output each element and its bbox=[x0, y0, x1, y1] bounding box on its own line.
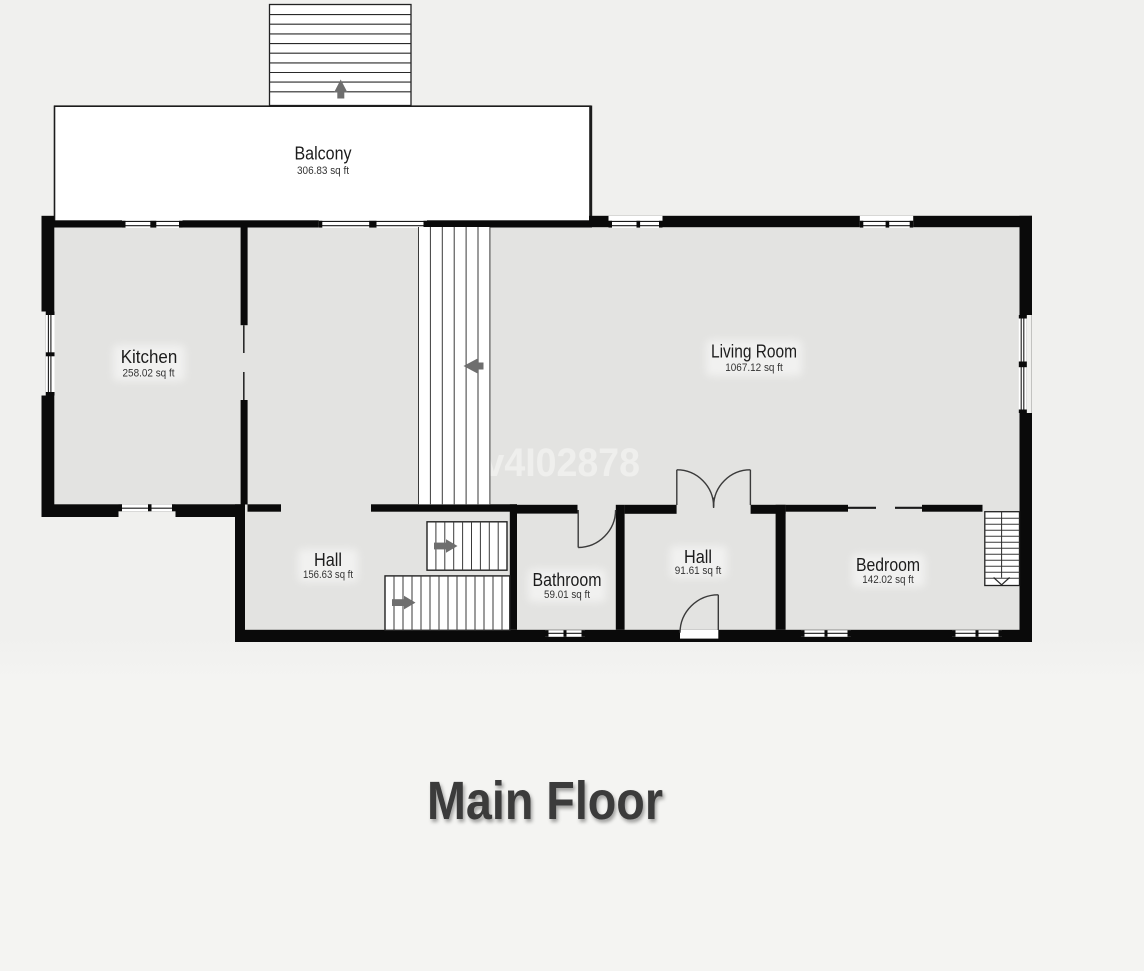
svg-text:Kitchen: Kitchen bbox=[121, 347, 178, 367]
svg-text:59.01 sq ft: 59.01 sq ft bbox=[544, 589, 591, 601]
svg-text:Living Room: Living Room bbox=[711, 342, 797, 362]
svg-text:Hall: Hall bbox=[314, 550, 342, 570]
svg-text:Bathroom: Bathroom bbox=[533, 570, 602, 590]
svg-text:91.61 sq ft: 91.61 sq ft bbox=[675, 565, 722, 577]
svg-text:1067.12 sq ft: 1067.12 sq ft bbox=[725, 362, 783, 374]
svg-text:Balcony: Balcony bbox=[295, 144, 352, 164]
svg-text:156.63 sq ft: 156.63 sq ft bbox=[303, 569, 354, 581]
svg-text:306.83 sq ft: 306.83 sq ft bbox=[297, 165, 350, 177]
svg-text:142.02 sq ft: 142.02 sq ft bbox=[862, 574, 914, 586]
svg-text:258.02 sq ft: 258.02 sq ft bbox=[123, 368, 176, 380]
svg-text:Hall: Hall bbox=[684, 547, 712, 567]
svg-text:Bedroom: Bedroom bbox=[856, 555, 920, 575]
svg-text:Main Floor: Main Floor bbox=[427, 771, 663, 831]
